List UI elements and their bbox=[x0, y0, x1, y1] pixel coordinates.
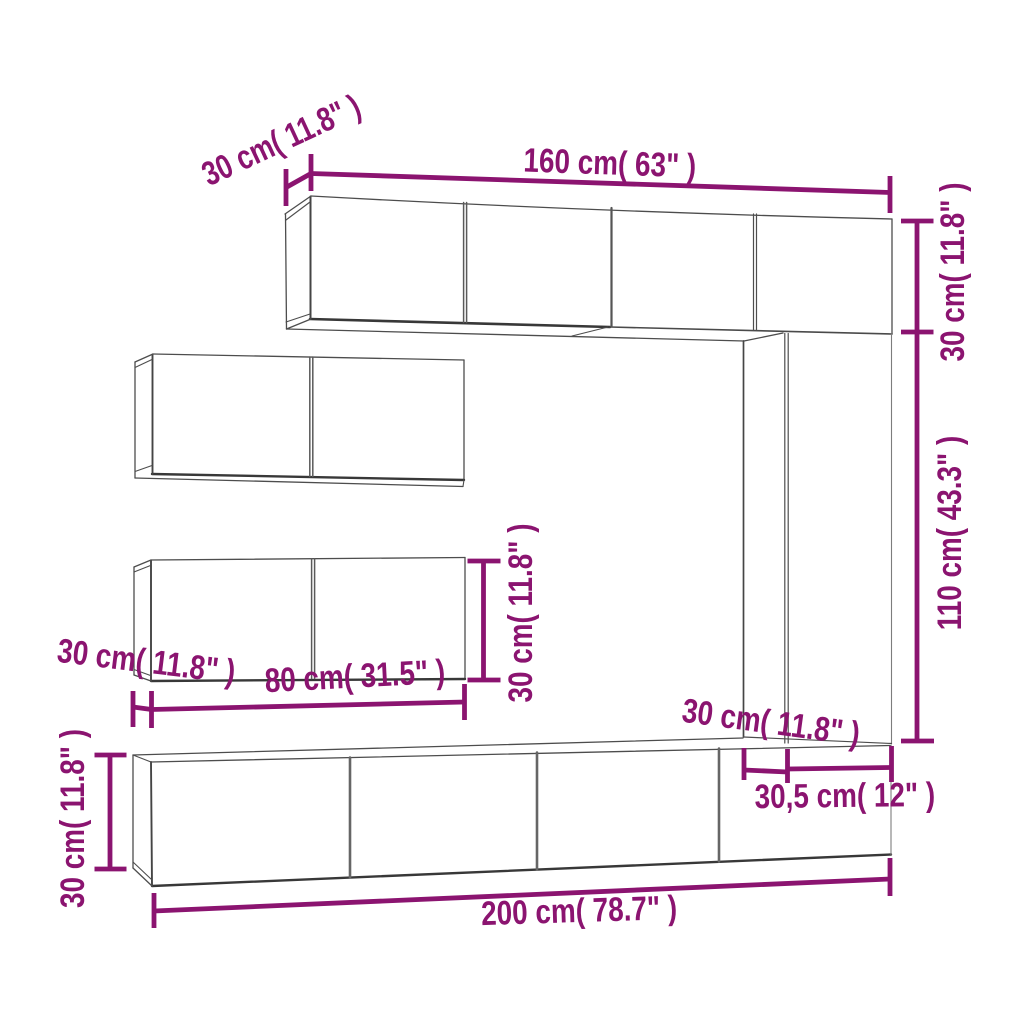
svg-text:30 cm( 11.8" ): 30 cm( 11.8" ) bbox=[933, 183, 971, 362]
svg-text:110 cm( 43.3" ): 110 cm( 43.3" ) bbox=[930, 436, 968, 630]
svg-text:30 cm( 11.8" ): 30 cm( 11.8" ) bbox=[501, 524, 539, 703]
svg-text:30 cm( 11.8" ): 30 cm( 11.8" ) bbox=[53, 729, 91, 908]
svg-text:30,5 cm( 12" ): 30,5 cm( 12" ) bbox=[754, 775, 935, 815]
svg-text:160 cm( 63" ): 160 cm( 63" ) bbox=[523, 141, 697, 185]
svg-text:200 cm( 78.7" ): 200 cm( 78.7" ) bbox=[481, 888, 678, 932]
